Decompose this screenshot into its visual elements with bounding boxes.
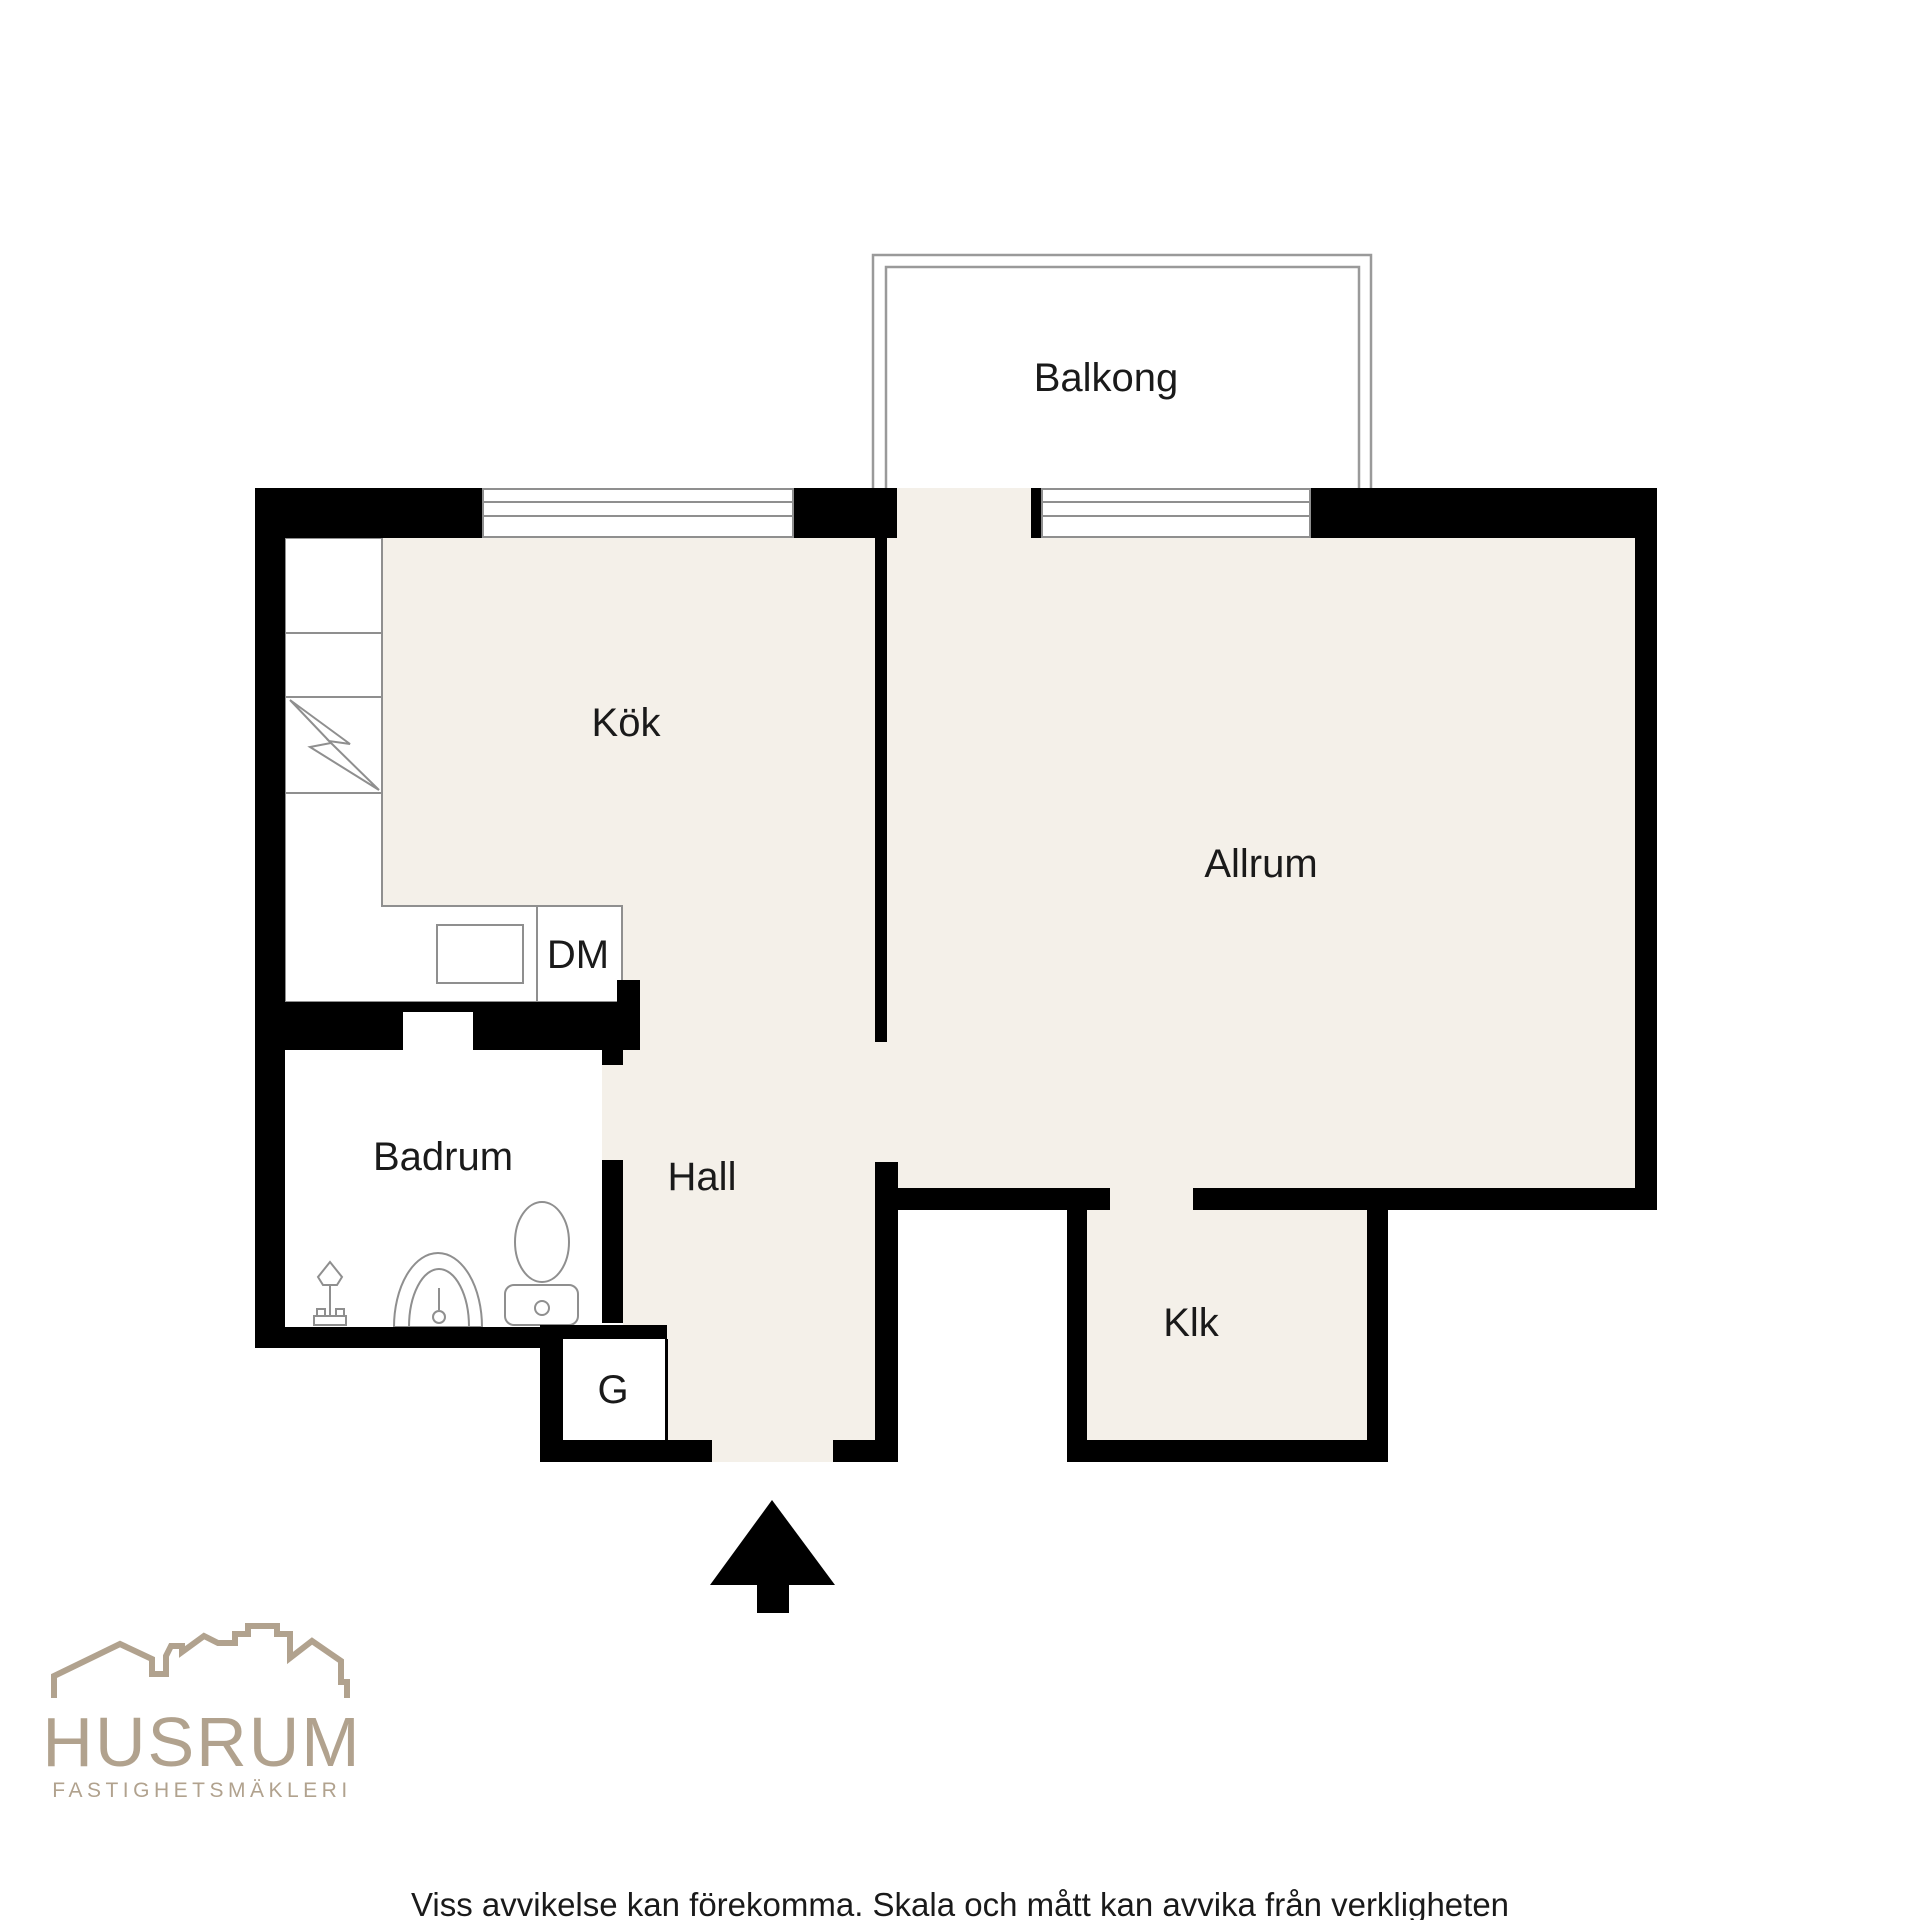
floorplan-canvas: Balkong Kök Allrum DM Badrum Hall Klk G … bbox=[0, 0, 1920, 1920]
entrance-arrow-icon bbox=[710, 1500, 835, 1613]
kitchen-window-icon bbox=[483, 489, 793, 537]
wall-top-left bbox=[255, 488, 483, 538]
husrum-logo-skyline-icon bbox=[54, 1626, 347, 1698]
wall-wardrobe-right-line bbox=[665, 1339, 668, 1440]
room-label-hall: Hall bbox=[668, 1155, 737, 1199]
husrum-logo-subtitle: FASTIGHETSMÄKLERI bbox=[52, 1779, 351, 1802]
wall-living-bottom-left bbox=[875, 1188, 1110, 1210]
wall-wardrobe-top bbox=[563, 1325, 667, 1339]
wall-closet-bottom bbox=[1067, 1440, 1388, 1462]
room-label-closet: Klk bbox=[1163, 1301, 1220, 1345]
wall-left bbox=[255, 488, 285, 1348]
floor-closet-doorway bbox=[1110, 1188, 1193, 1210]
floor-closet bbox=[1087, 1210, 1367, 1440]
wall-entrance-left bbox=[540, 1440, 712, 1462]
wall-bathroom-right-lower bbox=[602, 1160, 623, 1323]
room-label-living: Allrum bbox=[1204, 842, 1317, 886]
wall-right bbox=[1635, 488, 1657, 1210]
livingroom-window-icon bbox=[1042, 489, 1310, 537]
wall-balcony-door-jamb bbox=[1031, 488, 1042, 538]
wall-living-bottom-right bbox=[1193, 1188, 1657, 1210]
wall-bathroom-bottom bbox=[255, 1327, 563, 1348]
wall-entrance-right bbox=[833, 1440, 898, 1462]
wall-top-pillar bbox=[793, 488, 897, 538]
kitchen-sink-icon bbox=[437, 925, 523, 983]
room-label-kitchen: Kök bbox=[592, 701, 662, 745]
wall-bathroom-right-upper bbox=[602, 1050, 623, 1065]
wall-closet-right bbox=[1367, 1210, 1388, 1462]
husrum-logo-text: HUSRUM bbox=[42, 1703, 361, 1781]
disclaimer-text: Viss avvikelse kan förekomma. Skala och … bbox=[411, 1886, 1509, 1920]
room-label-dishwasher: DM bbox=[547, 933, 609, 977]
wall-kitchen-bottom-riser bbox=[617, 980, 640, 1002]
wall-divider bbox=[875, 538, 887, 1042]
room-label-wardrobe: G bbox=[597, 1368, 628, 1412]
floor-hall-column bbox=[623, 538, 875, 1462]
husrum-logo: HUSRUM FASTIGHETSMÄKLERI bbox=[42, 1626, 361, 1802]
room-label-bathroom: Badrum bbox=[373, 1135, 513, 1179]
wall-closet-left bbox=[1067, 1210, 1087, 1462]
wall-niche bbox=[403, 1012, 473, 1050]
floor-balcony-doorway bbox=[897, 488, 1031, 538]
wall-top-right bbox=[1310, 488, 1657, 538]
room-label-balcony: Balkong bbox=[1034, 356, 1179, 400]
